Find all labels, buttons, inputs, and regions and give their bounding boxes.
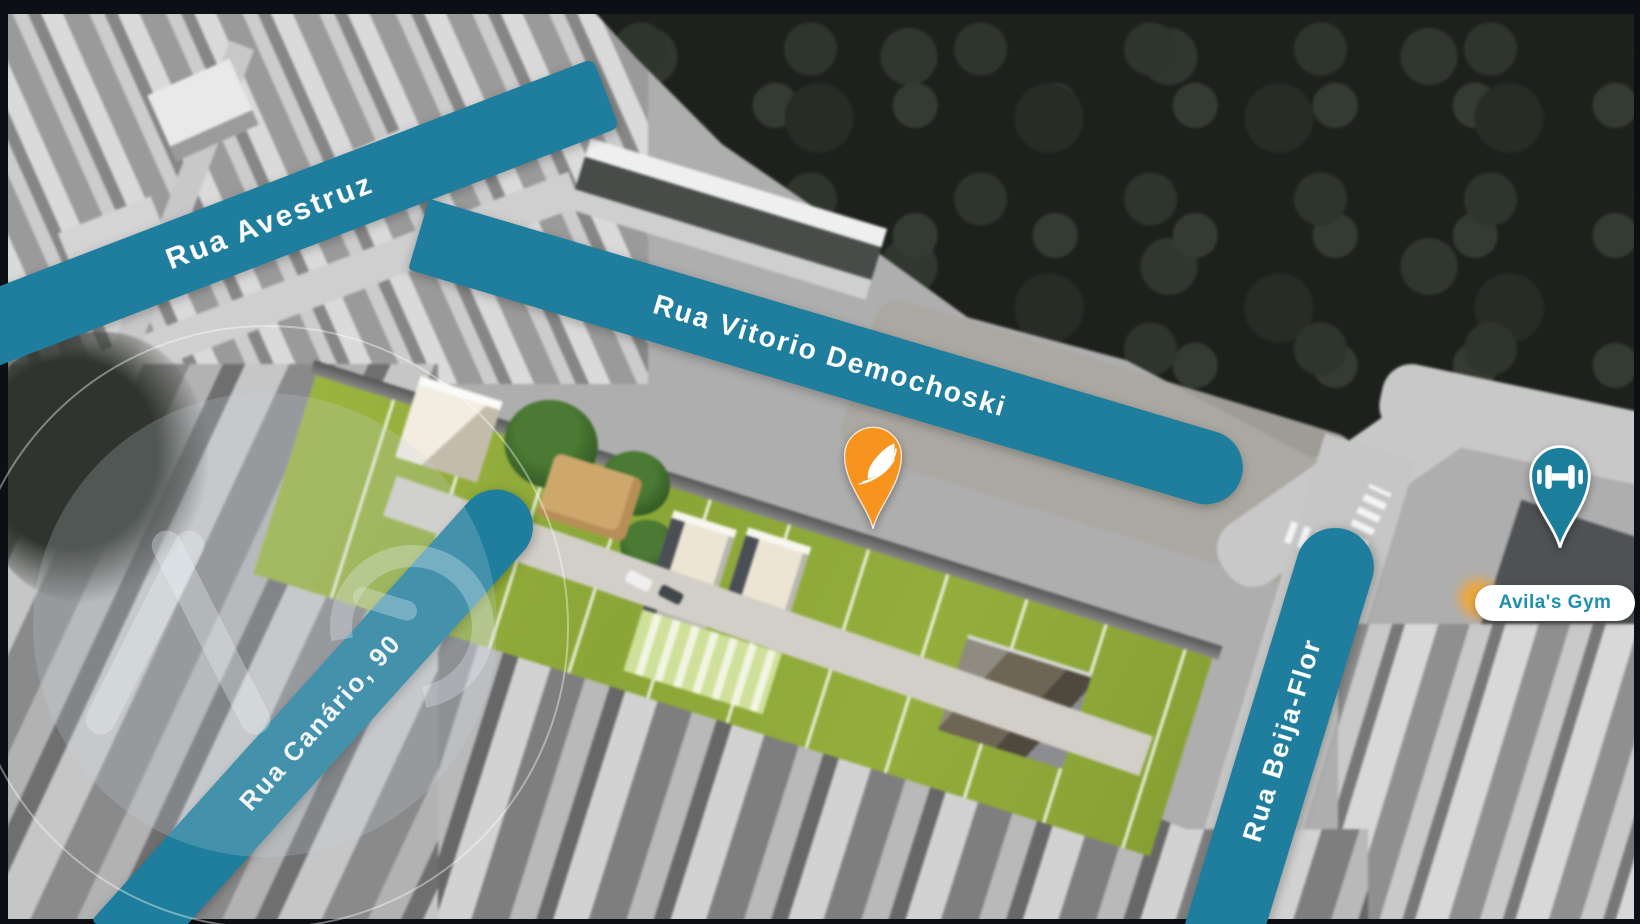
- housing-area-southeast: [1338, 624, 1634, 919]
- property-location-pin-icon[interactable]: [841, 419, 905, 537]
- parked-car: [657, 584, 684, 606]
- gym-label-pill[interactable]: Avila's Gym: [1475, 585, 1635, 621]
- parked-car: [624, 569, 653, 592]
- aerial-map-image: Rua Avestruz Rua Vitorio Demochoski Rua …: [0, 0, 1640, 924]
- gym-dumbbell-pin-icon[interactable]: [1525, 443, 1595, 553]
- gym-label-text: Avila's Gym: [1499, 592, 1612, 614]
